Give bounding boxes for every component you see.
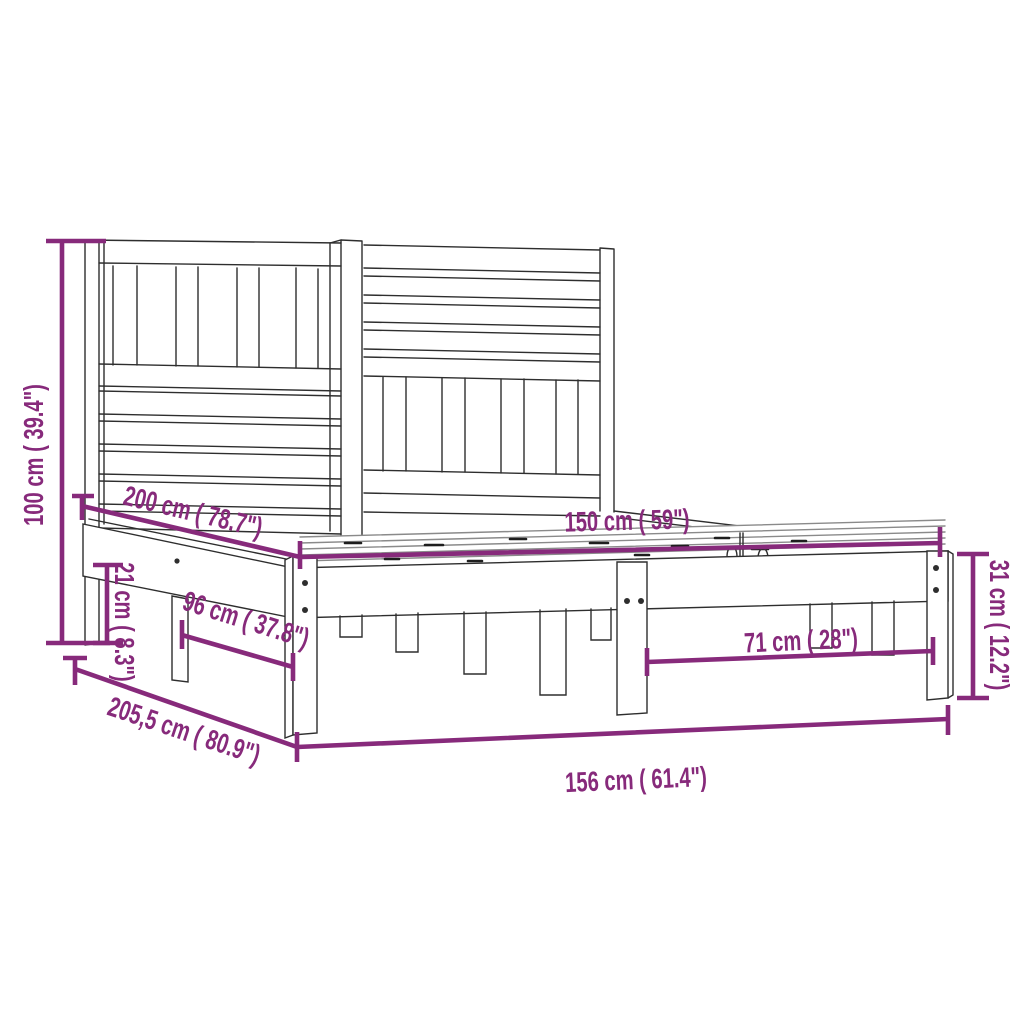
dimension-label-foot-end-height: 31 cm ( 12.2") [983, 560, 1015, 691]
dimension-label-total-height: 100 cm ( 39.4") [18, 384, 50, 526]
dimension-label-total-width: 156 cm ( 61.4") [564, 761, 707, 799]
dimension-label-slat-width: 150 cm ( 59") [564, 503, 690, 538]
dimension-label-foot-leg-span: 71 cm ( 28") [743, 623, 858, 660]
diagram-canvas: 100 cm ( 39.4") 200 cm ( 78.7") 150 cm (… [0, 0, 1024, 1024]
dim-line-total-height [46, 241, 110, 643]
dimension-label-rail-clearance: 21 cm ( 8.3") [108, 562, 140, 681]
